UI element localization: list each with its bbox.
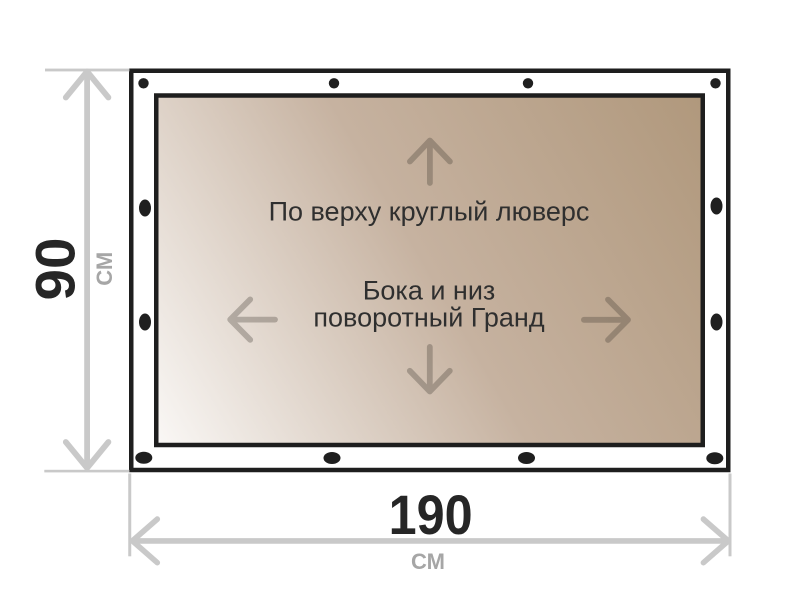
svg-text:поворотный Гранд: поворотный Гранд <box>313 302 544 332</box>
svg-text:190: 190 <box>389 483 473 546</box>
svg-text:90: 90 <box>24 238 87 301</box>
svg-text:Бока и низ: Бока и низ <box>363 275 496 305</box>
svg-text:СМ: СМ <box>411 549 445 574</box>
svg-text:СМ: СМ <box>92 252 117 286</box>
svg-text:По верху круглый люверс: По верху круглый люверс <box>269 197 590 227</box>
